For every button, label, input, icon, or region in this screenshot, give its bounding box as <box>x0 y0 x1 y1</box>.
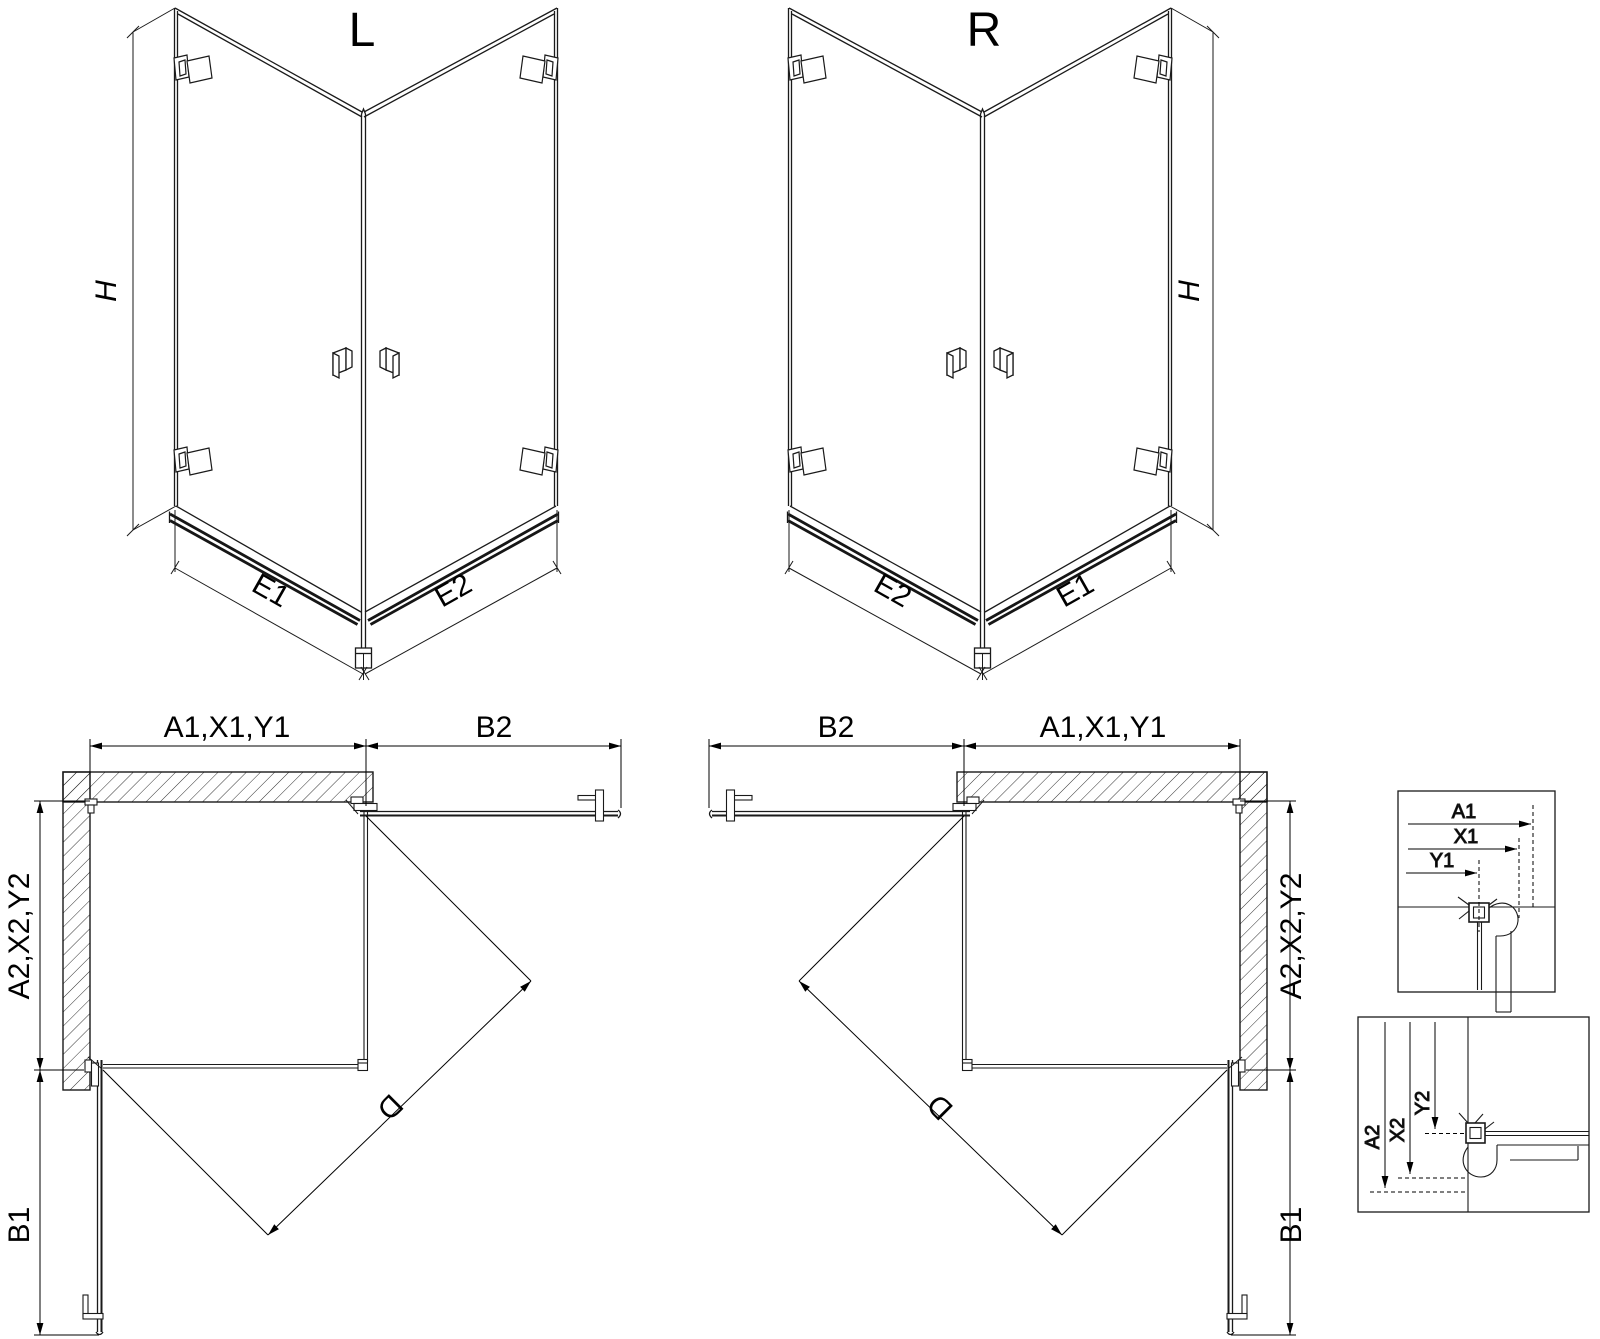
dim-label-e1-right: E1 <box>1051 567 1099 614</box>
variant-label-left: L <box>349 4 376 57</box>
iso-view-left: L H E1 E2 <box>90 4 561 680</box>
detail-label-x2: X2 <box>1387 1118 1409 1142</box>
detail-frame <box>1358 1017 1589 1212</box>
plan-view-left: A1,X1,Y1 B2 A2,X2,Y2 B1 D <box>3 711 621 1335</box>
dim-label-a1x1y1-left: A1,X1,Y1 <box>164 711 291 744</box>
dim-label-d-left: D <box>370 1087 409 1126</box>
plan-view-right: B2 A1,X1,Y1 A2,X2,Y2 B1 D <box>709 711 1308 1335</box>
detail-label-y2: Y2 <box>1412 1091 1434 1115</box>
detail-label-x1: X1 <box>1454 826 1478 848</box>
plan-right-geometry <box>709 739 1296 1335</box>
iso-right-geometry <box>785 8 1219 680</box>
dim-label-d-right: D <box>921 1087 960 1126</box>
variant-label-right: R <box>967 4 1002 57</box>
dim-label-h-left: H <box>90 280 123 302</box>
detail-view-a1x1y1: A1 X1 Y1 <box>1398 791 1555 1012</box>
wall-hatch-left <box>63 772 90 1090</box>
wall-hatch-top <box>63 772 373 802</box>
dim-label-e1-left: E1 <box>247 567 295 614</box>
wall-hatch-top <box>957 772 1267 802</box>
shower-enclosure-technical-drawing: L H E1 E2 R H E2 E1 A1,X1,Y1 B2 A2,X2,Y2… <box>0 0 1600 1339</box>
dim-label-b1-left: B1 <box>3 1207 36 1244</box>
iso-view-right: R H E2 E1 <box>785 4 1219 680</box>
dim-label-b2-left: B2 <box>476 711 513 744</box>
detail-label-y1: Y1 <box>1430 850 1454 872</box>
wall-hatch-right <box>1240 772 1267 1090</box>
dim-label-b2-right: B2 <box>818 711 855 744</box>
iso-left-geometry <box>127 8 561 680</box>
dim-label-e2-right: E2 <box>869 567 917 614</box>
drawing-canvas: L H E1 E2 R H E2 E1 A1,X1,Y1 B2 A2,X2,Y2… <box>0 0 1600 1339</box>
dim-label-a1x1y1-right: A1,X1,Y1 <box>1040 711 1167 744</box>
profile-section <box>1459 1113 1589 1177</box>
dim-label-a2x2y2-left: A2,X2,Y2 <box>3 873 36 1000</box>
dim-label-a2x2y2-right: A2,X2,Y2 <box>1275 873 1308 1000</box>
detail-label-a2: A2 <box>1362 1125 1384 1149</box>
detail-view-a2x2y2: A2 X2 Y2 <box>1358 1017 1589 1212</box>
detail-frame <box>1398 791 1555 992</box>
dim-label-b1-right: B1 <box>1275 1207 1308 1244</box>
dim-label-e2-left: E2 <box>429 567 477 614</box>
plan-left-geometry <box>34 739 621 1335</box>
dim-label-h-right: H <box>1173 280 1206 302</box>
profile-section <box>1458 897 1518 1012</box>
detail-label-a1: A1 <box>1452 801 1476 823</box>
